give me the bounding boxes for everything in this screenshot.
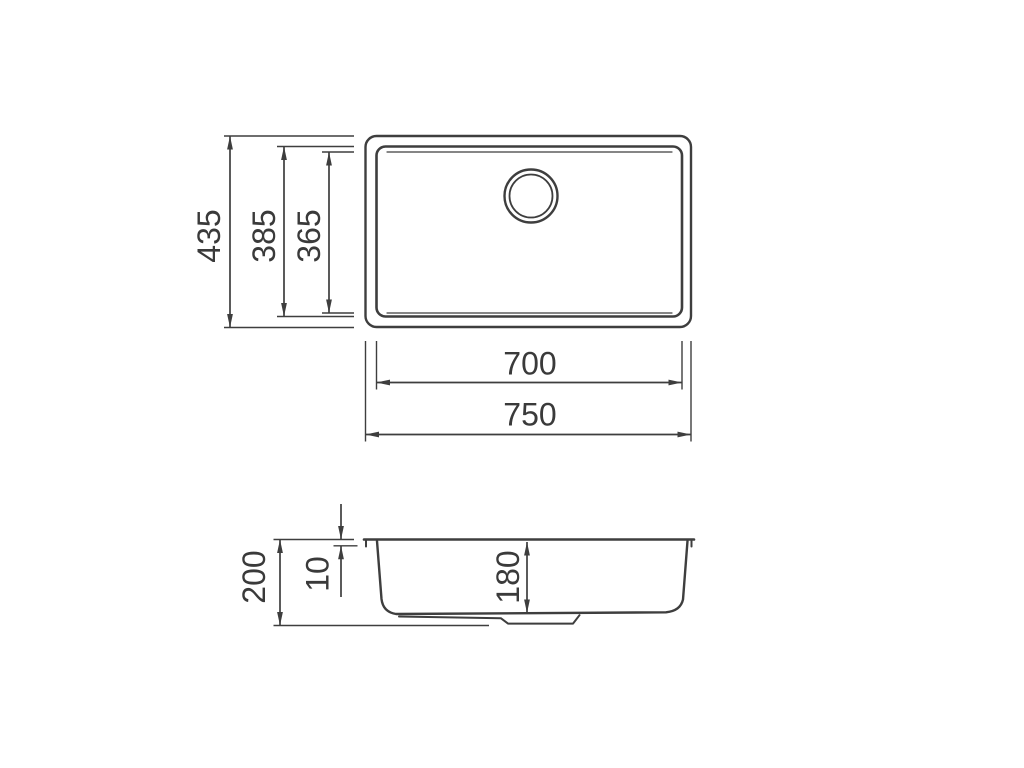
dim-label-overall-width: 750 <box>503 397 556 433</box>
dim-bowl-depth: 180 <box>490 542 530 613</box>
drain-recess-outline <box>399 615 580 623</box>
sink-outer-outline <box>366 136 692 327</box>
arrowhead-up <box>326 152 332 166</box>
drain-inner-circle <box>510 175 553 218</box>
dim-rim-height: 10 <box>300 504 358 597</box>
sink-technical-drawing: 435 385 365 700 <box>0 0 1024 768</box>
arrowhead-up <box>281 147 287 161</box>
arrowhead-down <box>338 526 344 540</box>
dim-label-rim-height: 10 <box>300 556 336 592</box>
top-view <box>366 136 692 327</box>
arrowhead-up <box>227 136 233 150</box>
drain-outer-circle <box>505 170 558 223</box>
dim-label-bowl-depth: 180 <box>490 550 526 603</box>
dim-bowl-width: 700 <box>377 341 683 390</box>
arrowhead-down <box>326 300 332 314</box>
dim-bowl-inner-height: 365 <box>291 152 354 313</box>
dim-label-overall-height: 435 <box>191 209 227 262</box>
dim-label-bowl-width: 700 <box>503 346 556 382</box>
drawing-sheet: 435 385 365 700 <box>0 0 1024 768</box>
dim-label-bowl-inner-height: 365 <box>291 209 327 262</box>
bowl-section-outline <box>377 541 688 614</box>
arrowhead-down <box>227 314 233 328</box>
arrowhead-left <box>377 380 391 386</box>
arrowhead-down <box>277 612 283 626</box>
arrowhead-left <box>366 432 380 438</box>
arrowhead-down <box>281 303 287 317</box>
arrowhead-up <box>338 546 344 560</box>
dim-label-bowl-outer-height: 385 <box>246 209 282 262</box>
arrowhead-right <box>669 380 683 386</box>
arrowhead-up <box>277 540 283 554</box>
sink-bowl-outline <box>377 147 683 317</box>
arrowhead-right <box>678 432 692 438</box>
dim-label-overall-depth: 200 <box>236 550 272 603</box>
